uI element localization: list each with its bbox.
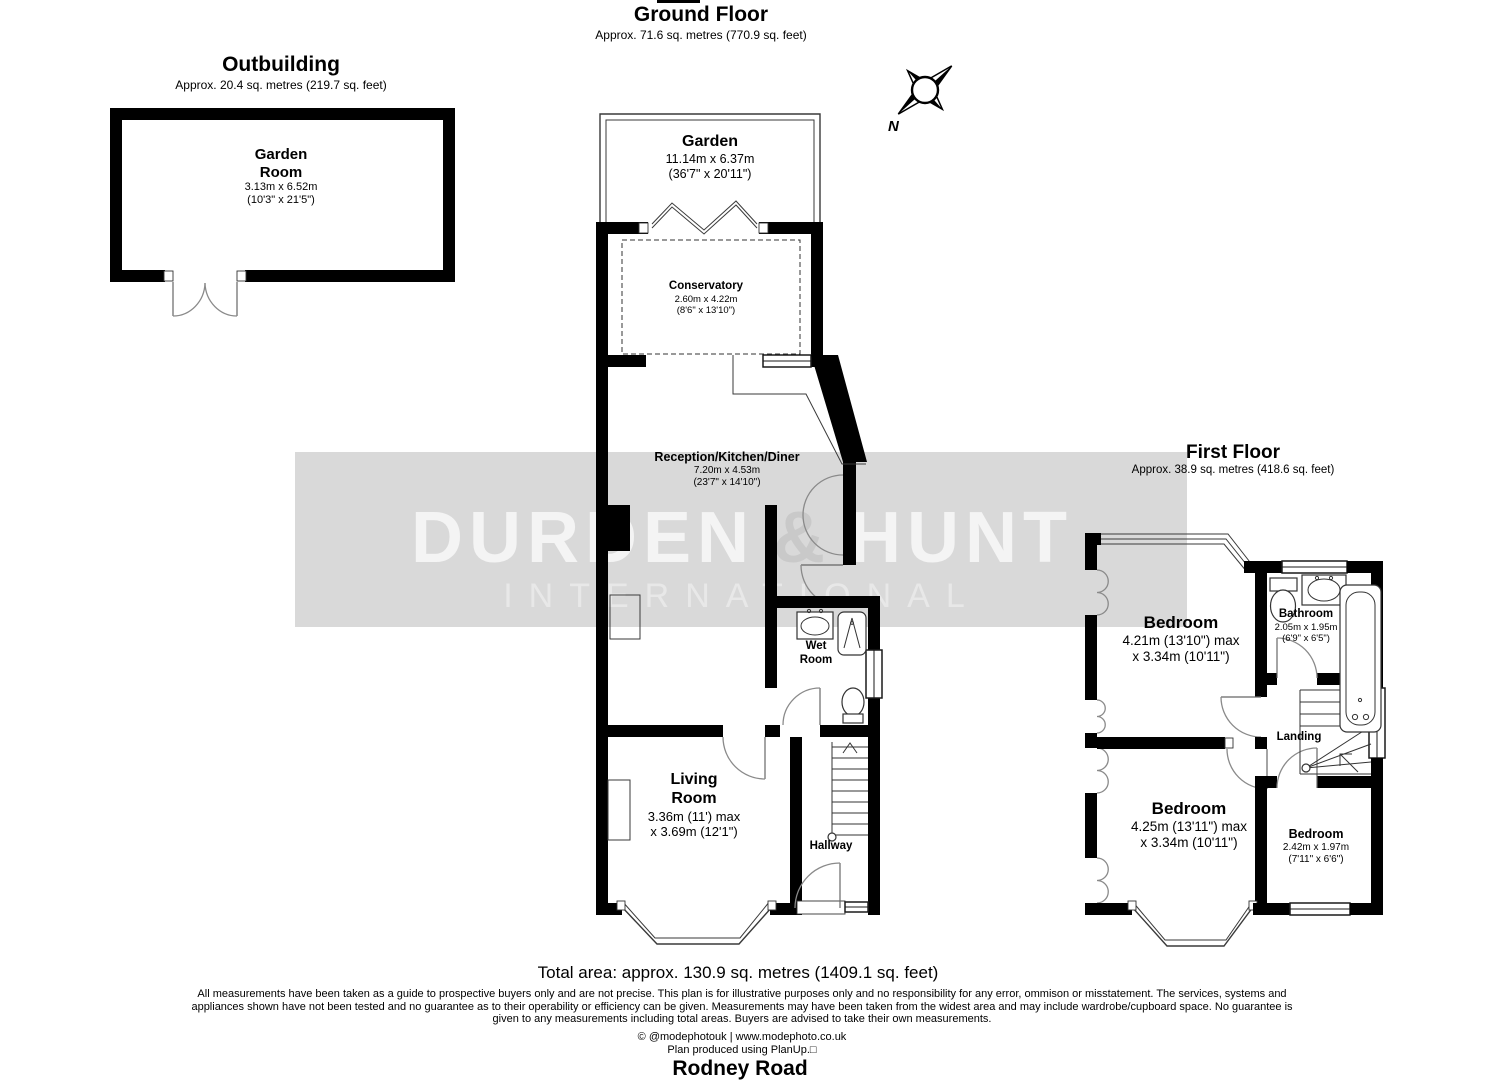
ground-floor-header: Ground Floor Approx. 71.6 sq. metres (77… bbox=[595, 3, 806, 42]
bedroom-rear-label: Bedroom 4.25m (13'11") max x 3.34m (10'1… bbox=[1131, 799, 1247, 851]
garden-label: Garden 11.14m x 6.37m (36'7" x 20'11") bbox=[666, 133, 755, 181]
compass-icon: N bbox=[888, 66, 952, 135]
bedroom-front-label: Bedroom 4.21m (13'10") max x 3.34m (10'1… bbox=[1123, 613, 1240, 665]
outbuilding-header: Outbuilding Approx. 20.4 sq. metres (219… bbox=[175, 53, 386, 92]
stairs-up-arrow bbox=[843, 743, 857, 753]
disclaimer: All measurements have been taken as a gu… bbox=[191, 988, 1292, 1026]
watermark-word2: HUNT bbox=[849, 498, 1073, 578]
window bbox=[1290, 903, 1350, 915]
wet-room-label: Wet Room bbox=[800, 640, 833, 667]
toilet-icon bbox=[842, 688, 864, 723]
shower-icon bbox=[838, 612, 866, 655]
bay-window bbox=[617, 901, 776, 944]
window bbox=[866, 650, 882, 698]
wet-room-door-arc bbox=[783, 688, 820, 725]
bathroom-label: Bathroom 2.05m x 1.95m (6'9" x 6'5") bbox=[1275, 608, 1338, 644]
front-door bbox=[795, 863, 845, 914]
staircase bbox=[828, 742, 868, 841]
bedroom-door-arc bbox=[1221, 697, 1261, 737]
svg-text:DURDEN&HUNT: DURDEN&HUNT bbox=[411, 498, 1073, 578]
garden-room-label: Garden Room 3.13m x 6.52m (10'3" x 21'5"… bbox=[245, 146, 318, 207]
watermark-subtitle: INTERNATIONAL bbox=[503, 577, 981, 615]
floorplan-page: DURDEN&HUNT INTERNATIONAL bbox=[0, 0, 1485, 1080]
fireplace-recess bbox=[608, 780, 630, 840]
chimney-breast bbox=[608, 505, 630, 551]
double-door-arc bbox=[173, 282, 237, 316]
window bbox=[1282, 561, 1347, 573]
compass-north-label: N bbox=[888, 118, 900, 135]
outbuilding-plan bbox=[110, 108, 455, 316]
living-room-label: Living Room 3.36m (11') max x 3.69m (12'… bbox=[648, 771, 741, 839]
bathtub-icon bbox=[1340, 585, 1381, 732]
window bbox=[845, 902, 868, 912]
address-title: Rodney Road bbox=[672, 1057, 807, 1080]
bathroom-door-arc bbox=[1277, 638, 1317, 678]
bay-window bbox=[1128, 901, 1257, 946]
first-floor-header: First Floor Approx. 38.9 sq. metres (418… bbox=[1132, 442, 1335, 478]
reception-kitchen-diner-label: Reception/Kitchen/Diner 7.20m x 4.53m (2… bbox=[654, 450, 799, 488]
conservatory-label: Conservatory 2.60m x 4.22m (8'6" x 13'10… bbox=[669, 280, 743, 316]
watermark-amp: & bbox=[773, 498, 831, 578]
bedroom-small-label: Bedroom 2.42m x 1.97m (7'11" x 6'6") bbox=[1283, 827, 1349, 865]
window bbox=[763, 355, 811, 367]
landing-label: Landing bbox=[1277, 731, 1322, 745]
credits: © @modephotouk | www.modephoto.co.uk Pla… bbox=[638, 1031, 847, 1056]
total-area: Total area: approx. 130.9 sq. metres (14… bbox=[538, 963, 939, 983]
hallway-label: Hallway bbox=[810, 840, 853, 854]
sink-icon bbox=[797, 609, 833, 639]
watermark-word1: DURDEN bbox=[411, 498, 755, 578]
bifold-door bbox=[652, 201, 757, 234]
